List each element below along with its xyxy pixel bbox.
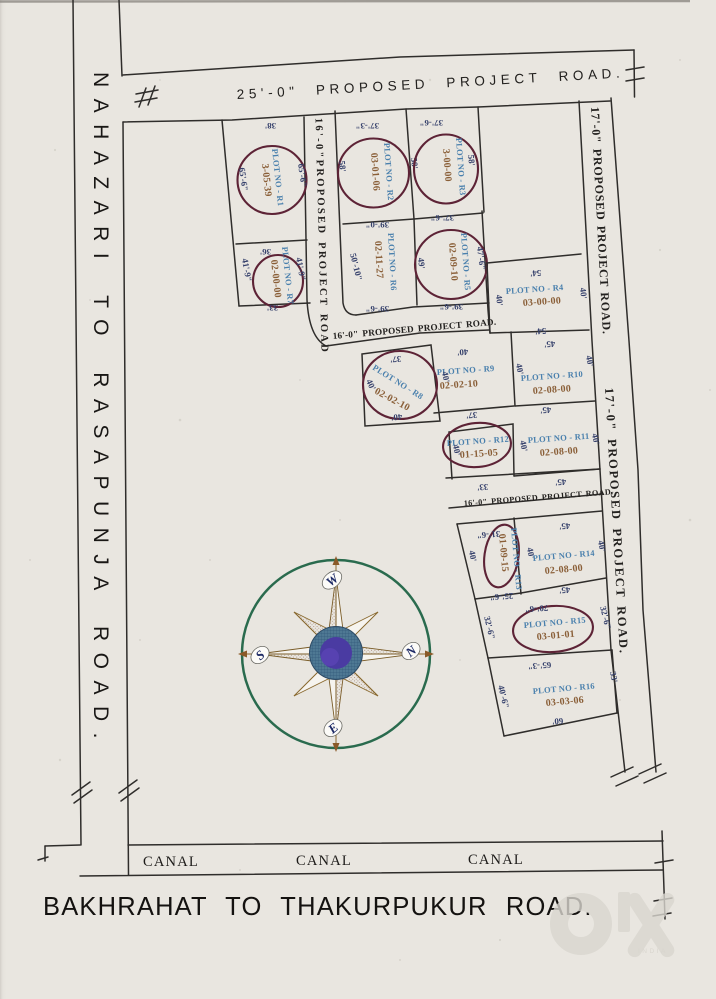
svg-text:39'-6": 39'-6"	[366, 304, 389, 314]
svg-text:BAKHRAHAT TO THAKURPUKUR ROAD.: BAKHRAHAT TO THAKURPUKUR ROAD.	[43, 893, 593, 921]
svg-text:38': 38'	[265, 121, 276, 131]
svg-text:45': 45'	[544, 339, 556, 350]
svg-text:58': 58'	[466, 154, 477, 166]
svg-text:40': 40'	[391, 412, 403, 423]
svg-text:40': 40'	[457, 347, 469, 358]
svg-text:39'-0": 39'-0"	[366, 220, 389, 230]
svg-text:37'-6": 37'-6"	[431, 213, 454, 223]
svg-text:54': 54'	[535, 326, 547, 337]
svg-text:45': 45'	[555, 477, 567, 488]
svg-text:CANAL: CANAL	[296, 853, 352, 869]
svg-text:70'-6": 70'-6"	[524, 603, 548, 615]
svg-text:40': 40'	[596, 540, 608, 553]
svg-text:NAHAZARI TO RASAPUNJA ROAD.: NAHAZARI TO RASAPUNJA ROAD.	[89, 72, 112, 750]
svg-text:40': 40'	[514, 363, 526, 376]
svg-text:25'-6": 25'-6"	[489, 591, 513, 603]
svg-text:37': 37'	[466, 410, 478, 421]
svg-text:40': 40'	[584, 355, 596, 368]
svg-text:37'-3": 37'-3"	[356, 121, 379, 131]
svg-text:3-00-00: 3-00-00	[440, 148, 453, 182]
svg-text:40': 40'	[451, 444, 463, 457]
svg-text:40': 40'	[518, 440, 530, 453]
svg-text:45': 45'	[559, 521, 571, 532]
svg-text:31'-6": 31'-6"	[476, 529, 500, 541]
svg-text:40': 40'	[440, 371, 452, 384]
svg-text:CANAL: CANAL	[468, 852, 524, 868]
svg-text:37': 37'	[390, 354, 402, 365]
svg-text:37'-6": 37'-6"	[420, 118, 443, 128]
svg-text:45': 45'	[559, 585, 571, 596]
svg-text:40': 40'	[494, 294, 505, 306]
svg-text:45': 45'	[540, 405, 552, 416]
svg-text:58': 58'	[337, 160, 348, 172]
svg-text:65'-3": 65'-3"	[527, 660, 551, 672]
svg-text:49': 49'	[416, 257, 427, 269]
svg-text:33': 33'	[267, 303, 278, 313]
svg-text:39'-6": 39'-6"	[440, 302, 463, 312]
svg-text:40': 40'	[590, 433, 602, 446]
svg-text:33': 33'	[477, 482, 489, 493]
svg-text:54': 54'	[530, 268, 542, 279]
svg-text:33': 33'	[608, 671, 620, 684]
svg-text:02-11-27: 02-11-27	[372, 241, 385, 279]
svg-text:40': 40'	[578, 287, 589, 299]
svg-text:40': 40'	[467, 550, 479, 563]
svg-text:60': 60'	[552, 716, 564, 727]
svg-text:INDIA: INDIA	[638, 948, 668, 955]
svg-text:CANAL: CANAL	[143, 854, 199, 870]
